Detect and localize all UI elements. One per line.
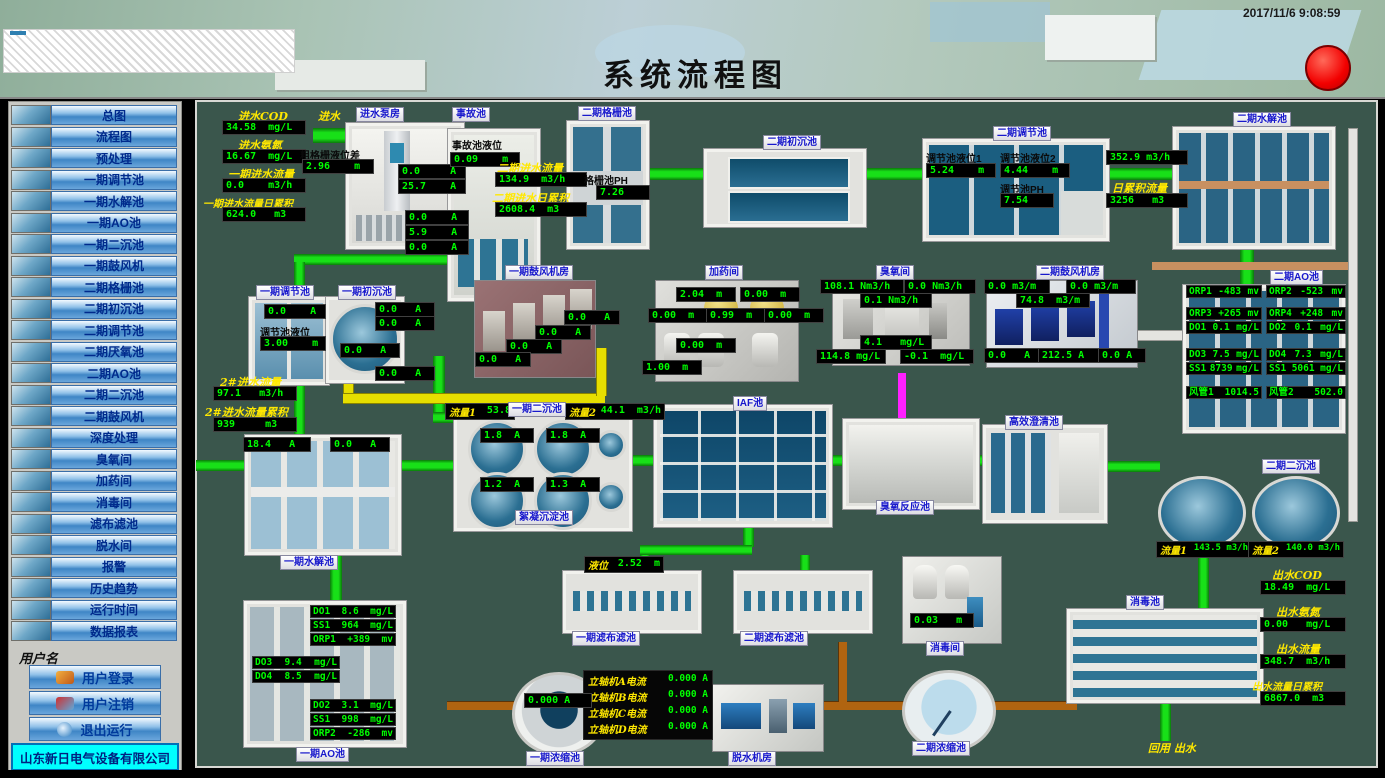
p1blower-c4: 0.0 A [475,352,531,367]
logout-label: 用户注销 [82,694,134,713]
sidebar-item-thumbnail [11,127,51,147]
sidebar-item-label: 一期AO池 [51,213,177,233]
sidebar-item-thumbnail [11,148,51,168]
sidebar-item-8[interactable]: 一期鼓风机 [11,256,177,276]
tag-p2-ao[interactable]: 二期AO池 [1270,270,1323,285]
p2ao-left-row: DO37.5mg/L [1186,348,1262,361]
influent-acc: 624.0 m3 [222,207,306,222]
disinfect-pool [1066,608,1264,704]
sidebar-item-thumbnail [11,557,51,577]
sidebar-item-thumbnail [11,234,51,254]
p2sec-flow1: 流量1143.5 m3/h [1156,541,1252,558]
alarm-lamp-icon[interactable] [1305,45,1351,91]
sidebar-item-label: 二期AO池 [51,363,177,383]
sidebar-item-thumbnail [11,342,51,362]
p1ao-row: SS1998mg/L [310,713,396,726]
p1ao-row: ORP2-286mv [310,727,396,740]
p2-hydro-acc: 3256 m3 [1106,193,1188,208]
grid-ph: 7.26 [596,185,650,200]
dosing-v3: 0.00 m [648,308,708,323]
tag-p1-ao[interactable]: 一期AO池 [296,747,349,762]
tag-thickener2[interactable]: 二期浓缩池 [912,741,970,756]
pipe-sludge-v [838,642,847,702]
p1sec-c2: 1.8 A [546,428,600,443]
p2-primary-tank [703,148,867,228]
ozone-v3: 0.1 Nm3/h [860,293,932,308]
sidebar-item-7[interactable]: 一期二沉池 [11,234,177,254]
ozone-v2: 0.0 Nm3/h [904,279,976,294]
pipe-green [743,525,754,547]
page-title: 系统流程图 [603,50,788,95]
tag-ozone-reactor[interactable]: 臭氧反应池 [876,500,934,515]
pipe-green [1107,168,1173,180]
tag-flocculation[interactable]: 絮凝沉淀池 [515,510,573,525]
dewater-row: 立轴机B电流0.000 A [586,689,710,704]
sidebar-item-21[interactable]: 脱水间 [11,535,177,555]
p2ao-right-row: DO47.3mg/L [1266,348,1346,361]
pipe-white2 [1130,330,1186,341]
p2ao-right-row: 风管2502.0 [1266,386,1346,399]
dosing-v2: 0.00 m [740,287,800,302]
pump-current-4: 5.9 A [405,225,469,240]
p1blower-c1: 0.0 A [564,310,620,325]
exit-label: 退出运行 [80,720,132,739]
p2ao-right-row: DO20.1mg/L [1266,321,1346,334]
p1-ao-mid-readouts: DO39.4mg/LDO48.5mg/L [252,656,340,684]
p1primary-c1: 0.0 A [375,302,435,317]
filter2-tank [733,570,873,634]
sidebar: 总图流程图预处理一期调节池一期水解池一期AO池一期二沉池一期鼓风机二期格栅池二期… [8,101,182,772]
sidebar-item-18[interactable]: 加药间 [11,471,177,491]
dosing-v1: 2.04 m [676,287,736,302]
sidebar-item-16[interactable]: 深度处理 [11,428,177,448]
p1sec-flow1-label: 流量1 [449,404,476,419]
reuse-label: 回用 出水 [1148,740,1196,756]
sidebar-item-20[interactable]: 滤布滤池 [11,514,177,534]
p1hydro-c2: 0.0 A [330,437,390,452]
pipe-yellow [596,348,607,396]
tag-p1-primary[interactable]: 一期初沉池 [338,285,396,300]
sidebar-item-thumbnail [11,471,51,491]
sidebar-item-13[interactable]: 二期AO池 [11,363,177,383]
pipe-tan [1152,262,1348,270]
sidebar-item-label: 二期初沉池 [51,299,177,319]
disinfect-room [902,556,1002,644]
p1blower-c2: 0.0 A [535,325,591,340]
dosing-v6: 0.00 m [676,338,736,353]
dewater-row: 立轴机C电流0.000 A [586,705,710,720]
p2blower-v1: 0.0 m3/m [984,279,1050,294]
p1ao-row: SS1964mg/L [310,619,396,632]
filter1-tank [562,570,702,634]
accident-level-label: 事故池液位 [452,137,502,152]
sidebar-item-11[interactable]: 二期调节池 [11,320,177,340]
tag-dewater-room[interactable]: 脱水机房 [728,751,776,766]
sidebar-item-14[interactable]: 二期二沉池 [11,385,177,405]
pump-current-3: 0.0 A [405,210,469,225]
p2-acc: 2608.4 m3 [495,202,587,217]
p1-ao-bottom-readouts: DO23.1mg/LSS1998mg/LORP2-286mv [310,699,396,741]
effluent-cod: 18.49 mg/L [1260,580,1346,595]
banner: 系统流程图 2017/11/6 9:08:59 [0,0,1385,99]
filter1-level-label: 液位 [588,557,608,572]
sidebar-item-22[interactable]: 报警 [11,557,177,577]
tag-p1-secondary[interactable]: 一期二沉池 [508,402,566,417]
p2ao-left-row: SS18739mg/L [1186,362,1262,375]
sidebar-item-label: 一期二沉池 [51,234,177,254]
tag-ozone-room[interactable]: 臭氧间 [876,265,914,280]
sidebar-item-label: 一期水解池 [51,191,177,211]
p2sec-flow2: 流量2140.0 m3/h [1248,541,1344,558]
sidebar-item-thumbnail [11,385,51,405]
scada-screen: 系统流程图 2017/11/6 9:08:59 总图流程图预处理一期调节池一期水… [0,0,1385,778]
sidebar-item-thumbnail [11,578,51,598]
pipe-green [640,545,752,555]
p1sec-flow2: 流量244.1 m3/h [565,403,665,420]
p1-small-tank-2 [596,482,626,512]
tag-thickener1[interactable]: 一期浓缩池 [526,751,584,766]
tag-disinfect-pool[interactable]: 消毒池 [1126,595,1164,610]
p2-ph: 7.54 [1000,193,1054,208]
p2-inflow: 134.9 m3/h [495,172,587,187]
sidebar-item-label: 二期厌氧池 [51,342,177,362]
p2blower-v2: 0.0 m3/m [1066,279,1136,294]
p1primary-c4: 0.0 A [375,366,435,381]
p1-hydrolysis-tank [244,434,402,556]
aerial-building2 [275,60,425,90]
sidebar-menu: 总图流程图预处理一期调节池一期水解池一期AO池一期二沉池一期鼓风机二期格栅池二期… [11,105,177,643]
p1sec-c1: 1.8 A [480,428,534,443]
tag-p1-regulating[interactable]: 一期调节池 [256,285,314,300]
sidebar-item-23[interactable]: 历史趋势 [11,578,177,598]
sidebar-item-1[interactable]: 总图 [11,105,177,125]
clock: 2017/11/6 9:08:59 [1243,6,1340,20]
login-label: 用户登录 [82,668,134,687]
sidebar-item-label: 预处理 [51,148,177,168]
sidebar-item-label: 历史趋势 [51,578,177,598]
influent-nh3: 16.67 mg/L [222,149,306,164]
pipe-green [800,555,810,571]
ozone-v4: 4.1 mg/L [860,335,932,350]
sidebar-item-thumbnail [11,213,51,233]
sidebar-item-12[interactable]: 二期厌氧池 [11,342,177,362]
iaf-pool [653,404,833,528]
pipe-white [1348,128,1358,522]
sidebar-item-10[interactable]: 二期初沉池 [11,299,177,319]
sidebar-item-thumbnail [11,363,51,383]
sidebar-item-thumbnail [11,600,51,620]
p2ao-right-row: ORP4+248mv [1266,307,1346,320]
sidebar-item-15[interactable]: 二期鼓风机 [11,406,177,426]
sidebar-item-label: 一期调节池 [51,170,177,190]
sidebar-item-thumbnail [11,277,51,297]
tag-pump-station[interactable]: 进水泵房 [356,107,404,122]
influent-cod: 34.58 mg/L [222,120,306,135]
thickener1-current: 0.000 A [524,693,592,708]
exit-button[interactable]: 退出运行 [29,717,161,741]
p1sec-flow1: 流量153.8 [445,403,515,420]
sidebar-item-9[interactable]: 二期格栅池 [11,277,177,297]
sidebar-item-24[interactable]: 运行时间 [11,600,177,620]
pump-current-5: 0.0 A [405,240,469,255]
pipe-magenta [898,373,906,419]
sidebar-item-thumbnail [11,105,51,125]
p2ao-left-row: ORP3+265mv [1186,307,1262,320]
p2-ao-left-readouts: ORP1-483mvORP3+265mvDO10.1mg/LDO37.5mg/L… [1186,285,1262,400]
p1sec-c3: 1.2 A [480,477,534,492]
logo-placeholder [3,29,295,73]
sidebar-item-2[interactable]: 流程图 [11,127,177,147]
tag-grid-pool[interactable]: 二期格栅池 [578,106,636,121]
p1primary-c2: 0.0 A [375,316,435,331]
tag-disinfect-room[interactable]: 消毒间 [926,641,964,656]
login-icon [56,671,74,684]
sidebar-item-label: 数据报表 [51,621,177,641]
tag-p1-blower[interactable]: 一期鼓风机房 [505,265,573,280]
dewater-room [712,684,824,752]
pipe-green [864,168,924,180]
dosing-v4: 0.99 m [706,308,766,323]
sidebar-item-4[interactable]: 一期调节池 [11,170,177,190]
exit-icon [57,722,72,737]
sidebar-item-thumbnail [11,428,51,448]
pipe-green [1105,461,1160,472]
logout-button[interactable]: 用户注销 [29,691,161,715]
bottom-bar [0,770,1385,778]
pipe-green [646,168,706,180]
logout-icon [56,697,74,710]
flow2-value: 97.1 m3/h [213,386,297,401]
p2-level2: 4.44 m [1000,163,1070,178]
tag-p2-primary[interactable]: 二期初沉池 [763,135,821,150]
dewater-motor-panel: 立轴机A电流0.000 A立轴机B电流0.000 A立轴机C电流0.000 A立… [583,670,713,740]
grid-ph-label: 格栅池PH [584,172,628,187]
p2-clarifier-2 [1252,476,1340,550]
sidebar-item-thumbnail [11,514,51,534]
tag-dosing-room[interactable]: 加药间 [705,265,743,280]
sidebar-item-thumbnail [11,320,51,340]
sidebar-item-label: 二期二沉池 [51,385,177,405]
sidebar-item-thumbnail [11,535,51,555]
tag-p1-hydrolysis[interactable]: 一期水解池 [280,555,338,570]
effluent-acc: 6867.0 m3 [1260,691,1346,706]
p1primary-c3: 0.0 A [340,343,400,358]
p1reg-current: 0.0 A [264,304,326,319]
sidebar-item-thumbnail [11,621,51,641]
sidebar-item-thumbnail [11,299,51,319]
tag-clarifier[interactable]: 高效澄清池 [1005,415,1063,430]
p1ao-row: ORP1+389mv [310,633,396,646]
p1hydro-c1: 18.4 A [243,437,311,452]
p2blower-a1: 0.0 A [984,348,1042,363]
sidebar-item-label: 消毒间 [51,492,177,512]
p2blower-a2: 212.5 A [1038,348,1102,363]
tag-filter2[interactable]: 二期滤布滤池 [740,631,808,646]
ozone-v1: 108.1 Nm3/h [820,279,904,294]
sidebar-item-thumbnail [11,449,51,469]
p2-level1: 5.24 m [926,163,996,178]
effluent-flow: 348.7 m3/h [1260,654,1346,669]
login-button[interactable]: 用户登录 [29,665,161,689]
sidebar-item-label: 报警 [51,557,177,577]
p2-clarifier-1 [1158,476,1246,550]
sidebar-item-thumbnail [11,191,51,211]
dosing-v5: 0.00 m [764,308,824,323]
sidebar-item-thumbnail [11,170,51,190]
tag-p2-blower[interactable]: 二期鼓风机房 [1036,265,1104,280]
sidebar-item-5[interactable]: 一期水解池 [11,191,177,211]
tag-p2-hydrolysis[interactable]: 二期水解池 [1233,112,1291,127]
p1ao-row: DO48.5mg/L [252,670,340,683]
p1-ao-top-readouts: DO18.6mg/LSS1964mg/LORP1+389mv [310,605,396,647]
sidebar-item-label: 二期调节池 [51,320,177,340]
pipe-green [196,460,244,471]
sidebar-item-thumbnail [11,406,51,426]
influent-flow: 0.0 m3/h [222,178,306,193]
p2-hydro-flow: 352.9 m3/h [1106,150,1188,165]
coarse-screen-level: 2.96 m [302,159,374,174]
p1reg-level: 3.00 m [260,336,326,351]
tag-accident-pool[interactable]: 事故池 [452,107,490,122]
logo-accent [10,31,26,35]
ozone-v5: 114.8 mg/L [816,349,886,364]
sidebar-item-label: 加药间 [51,471,177,491]
p2sec-flow2-label: 流量2 [1252,542,1279,557]
pipe-green [398,460,456,471]
inlet-label: 进水 [318,108,340,124]
pipe-inlet [313,128,349,143]
p2ao-right-row: SS15061mg/L [1266,362,1346,375]
sidebar-item-17[interactable]: 臭氧间 [11,449,177,469]
effluent-nh3: 0.00 mg/L [1260,617,1346,632]
tag-filter1[interactable]: 一期滤布滤池 [572,631,640,646]
p2ao-left-row: DO10.1mg/L [1186,321,1262,334]
p2ao-right-row: ORP2-523mv [1266,285,1346,298]
sidebar-item-25[interactable]: 数据报表 [11,621,177,641]
disinfect-level: 0.03 m [910,613,974,628]
flow2-acc: 939 m3 [213,417,297,432]
ozone-v6: -0.1 mg/L [900,349,974,364]
pipe-green [630,455,655,466]
tag-p2-secondary[interactable]: 二期二沉池 [1262,459,1320,474]
dosing-v7: 1.00 m [642,360,702,375]
p1sec-c4: 1.3 A [546,477,600,492]
p2ao-left-row: 风管11014.5 [1186,386,1262,399]
p1ao-row: DO39.4mg/L [252,656,340,669]
sidebar-item-label: 一期鼓风机 [51,256,177,276]
sidebar-item-label: 滤布滤池 [51,514,177,534]
sidebar-item-label: 臭氧间 [51,449,177,469]
thickener2-tank [902,670,996,752]
ozone-reactor [842,418,980,510]
p1ao-row: DO23.1mg/L [310,699,396,712]
gauge-needle [932,710,952,736]
filter1-level: 液位2.52 m [584,556,664,573]
dewater-row: 立轴机D电流0.000 A [586,721,710,736]
sidebar-item-label: 流程图 [51,127,177,147]
p2sec-flow1-label: 流量1 [1160,542,1187,557]
sidebar-item-thumbnail [11,492,51,512]
dewater-row: 立轴机A电流0.000 A [586,673,710,688]
company-name: 山东新日电气设备有限公司 [11,743,179,771]
sidebar-item-label: 二期格栅池 [51,277,177,297]
p1sec-flow2-label: 流量2 [569,404,596,419]
sidebar-item-6[interactable]: 一期AO池 [11,213,177,233]
aerial-building [1045,15,1155,60]
sidebar-item-3[interactable]: 预处理 [11,148,177,168]
pipe-green [1160,701,1171,741]
tag-iaf[interactable]: IAF池 [733,396,767,411]
sidebar-item-19[interactable]: 消毒间 [11,492,177,512]
p2-hydrolysis-tank [1172,126,1336,250]
p1-small-tank-1 [596,430,626,460]
aerial-basin [930,2,1050,42]
sidebar-item-label: 深度处理 [51,428,177,448]
tag-p2-regulating[interactable]: 二期调节池 [993,126,1051,141]
sidebar-item-label: 运行时间 [51,600,177,620]
pump-current-2: 25.7 A [398,179,466,194]
p2ao-left-row: ORP1-483mv [1186,285,1262,298]
p2blower-v3: 74.8 m3/m [1016,293,1090,308]
p1ao-row: DO18.6mg/L [310,605,396,618]
clarifier-tank [982,424,1108,524]
sidebar-item-thumbnail [11,256,51,276]
p2blower-a3: 0.0 A [1098,348,1146,363]
sidebar-item-label: 二期鼓风机 [51,406,177,426]
p2-ao-right-readouts: ORP2-523mvORP4+248mvDO20.1mg/LDO47.3mg/L… [1266,285,1346,400]
sidebar-item-label: 脱水间 [51,535,177,555]
sidebar-item-label: 总图 [51,105,177,125]
